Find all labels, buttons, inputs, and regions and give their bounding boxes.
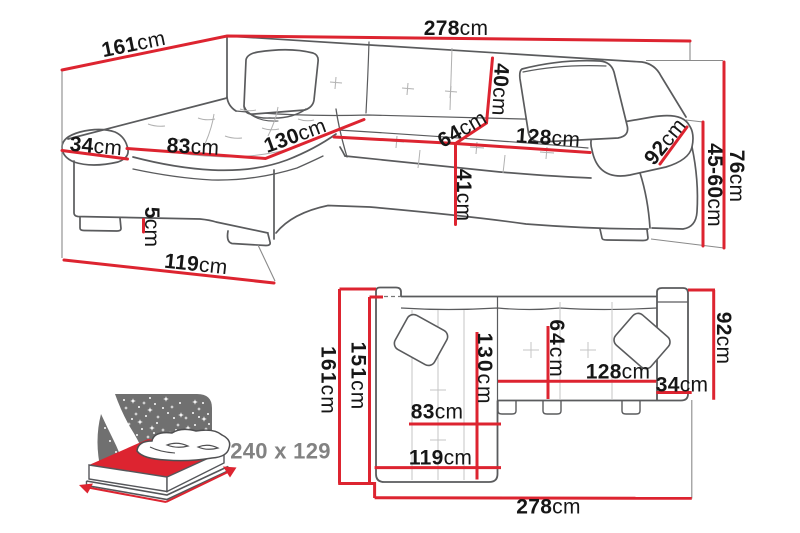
svg-text:45-60cm: 45-60cm bbox=[703, 143, 726, 227]
svg-text:240 x 129: 240 x 129 bbox=[230, 439, 331, 464]
svg-text:119cm: 119cm bbox=[409, 447, 472, 470]
svg-text:161cm: 161cm bbox=[100, 27, 168, 62]
svg-text:278cm: 278cm bbox=[424, 17, 489, 40]
svg-text:130cm: 130cm bbox=[473, 332, 496, 405]
svg-text:76cm: 76cm bbox=[725, 150, 748, 203]
svg-text:119cm: 119cm bbox=[163, 250, 228, 279]
svg-text:34cm: 34cm bbox=[656, 374, 709, 397]
svg-text:92cm: 92cm bbox=[640, 114, 691, 169]
svg-text:34cm: 34cm bbox=[69, 133, 123, 160]
svg-text:151cm: 151cm bbox=[347, 341, 370, 410]
svg-text:64cm: 64cm bbox=[545, 319, 568, 378]
svg-text:41cm: 41cm bbox=[452, 169, 475, 222]
svg-text:278cm: 278cm bbox=[516, 496, 581, 519]
svg-text:83cm: 83cm bbox=[411, 401, 464, 424]
svg-text:40cm: 40cm bbox=[487, 63, 513, 117]
svg-text:128cm: 128cm bbox=[586, 361, 651, 384]
svg-text:83cm: 83cm bbox=[166, 134, 220, 160]
svg-text:92cm: 92cm bbox=[712, 312, 735, 365]
svg-text:128cm: 128cm bbox=[515, 124, 581, 151]
svg-text:5cm: 5cm bbox=[140, 207, 163, 248]
svg-text:161cm: 161cm bbox=[317, 346, 340, 415]
